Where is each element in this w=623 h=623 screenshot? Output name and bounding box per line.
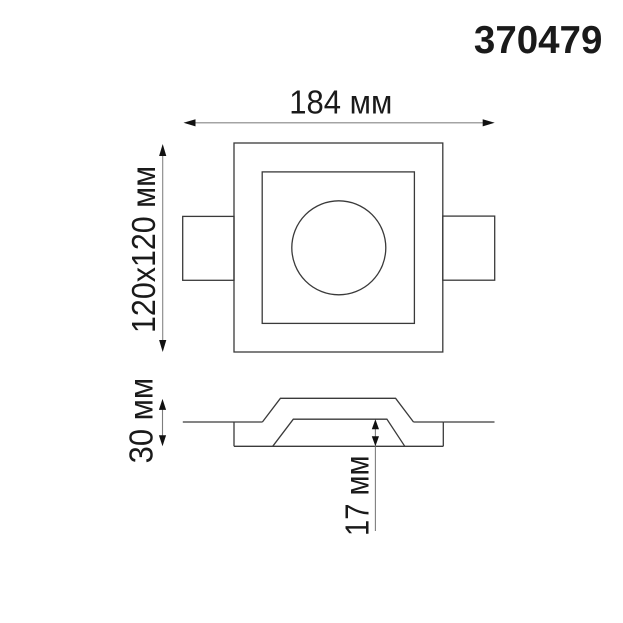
svg-text:370479: 370479 — [474, 19, 602, 62]
svg-text:17 мм: 17 мм — [339, 456, 376, 537]
svg-text:30 мм: 30 мм — [123, 378, 160, 464]
svg-text:184 мм: 184 мм — [289, 84, 392, 121]
svg-text:120x120 мм: 120x120 мм — [125, 166, 162, 333]
